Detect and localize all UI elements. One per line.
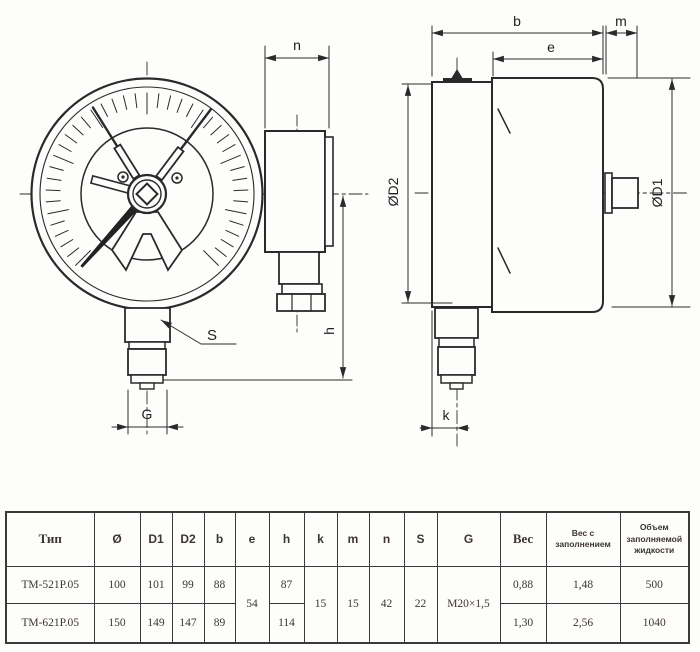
- case-back-body: [432, 82, 492, 307]
- dim-label-g: G: [142, 406, 153, 422]
- cell-volume: 1040: [620, 603, 689, 643]
- stem-thread: [128, 349, 166, 375]
- dim-label-d2: ØD2: [385, 177, 401, 206]
- contact-screw-left: [118, 172, 128, 182]
- cell-n-shared: 42: [369, 566, 404, 643]
- dim-label-k: k: [443, 407, 451, 423]
- cell-weight: 0,88: [500, 566, 546, 603]
- gauge-technical-drawing: n h S G: [0, 0, 700, 510]
- cell-m-shared: 15: [337, 566, 369, 643]
- header-s: S: [404, 512, 437, 566]
- header-dia: Ø: [94, 512, 140, 566]
- cell-weight-filled: 1,48: [546, 566, 620, 603]
- table-header-row: Тип Ø D1 D2 b e h k m n S G Вес Вес с за…: [6, 512, 689, 566]
- cell-dia: 100: [94, 566, 140, 603]
- cell-h: 114: [269, 603, 304, 643]
- dim-label-m: m: [615, 13, 627, 29]
- pointer-hub: [128, 175, 166, 213]
- dim-label-d1: ØD1: [649, 178, 665, 207]
- contact-screw-right: [172, 173, 182, 183]
- cell-d1: 101: [140, 566, 172, 603]
- cell-weight: 1,30: [500, 603, 546, 643]
- cell-h: 87: [269, 566, 304, 603]
- front-stem: [125, 308, 170, 389]
- case-front-bezel: [492, 78, 603, 312]
- header-h: h: [269, 512, 304, 566]
- cell-volume: 500: [620, 566, 689, 603]
- dim-e: e: [493, 39, 603, 76]
- header-d1: D1: [140, 512, 172, 566]
- cell-weight-filled: 2,56: [546, 603, 620, 643]
- dim-s: S: [161, 320, 236, 344]
- gland-nut: [277, 294, 325, 311]
- back-tab-arrow: [452, 69, 463, 78]
- dim-label-h: h: [321, 327, 337, 335]
- cell-s-shared: 22: [404, 566, 437, 643]
- cell-type: ТМ-521Р.05: [6, 566, 94, 603]
- cell-k-shared: 15: [304, 566, 337, 643]
- header-weight: Вес: [500, 512, 546, 566]
- dim-label-s: S: [207, 327, 217, 344]
- cell-d2: 147: [172, 603, 204, 643]
- dim-label-b: b: [513, 13, 521, 29]
- cell-e-shared: 54: [235, 566, 269, 643]
- header-weight-filled: Вес с заполнением: [546, 512, 620, 566]
- front-view: n h S G: [20, 37, 368, 434]
- dimension-table: Тип Ø D1 D2 b e h k m n S G Вес Вес с за…: [5, 511, 690, 644]
- header-k: k: [304, 512, 337, 566]
- header-m: m: [337, 512, 369, 566]
- header-volume: Объем заполняемой жидкости: [620, 512, 689, 566]
- side-view: b m e ØD2 ØD1: [385, 13, 690, 446]
- dim-label-e: e: [547, 39, 555, 55]
- side-nipple: [605, 173, 638, 213]
- dim-n: n: [265, 37, 329, 128]
- stem-socket: [125, 308, 170, 342]
- cell-d2: 99: [172, 566, 204, 603]
- dim-g: G: [112, 390, 183, 434]
- dim-label-n: n: [293, 37, 301, 53]
- header-d2: D2: [172, 512, 204, 566]
- electrical-connector-box: [265, 131, 333, 311]
- cell-dia: 150: [94, 603, 140, 643]
- cell-type: ТМ-621Р.05: [6, 603, 94, 643]
- side-stem: [435, 308, 478, 389]
- dim-b: b: [432, 13, 603, 76]
- table-row: ТМ-521Р.05 100 101 99 88 54 87 15 15 42 …: [6, 566, 689, 603]
- back-tab: [443, 78, 472, 82]
- dim-m: m: [606, 13, 637, 78]
- cell-d1: 149: [140, 603, 172, 643]
- cell-g-shared: М20×1,5: [437, 566, 500, 643]
- cell-b: 89: [204, 603, 235, 643]
- header-n: n: [369, 512, 404, 566]
- header-type: Тип: [6, 512, 94, 566]
- cable-gland: [279, 252, 319, 284]
- header-e: e: [235, 512, 269, 566]
- header-g: G: [437, 512, 500, 566]
- cell-b: 88: [204, 566, 235, 603]
- header-b: b: [204, 512, 235, 566]
